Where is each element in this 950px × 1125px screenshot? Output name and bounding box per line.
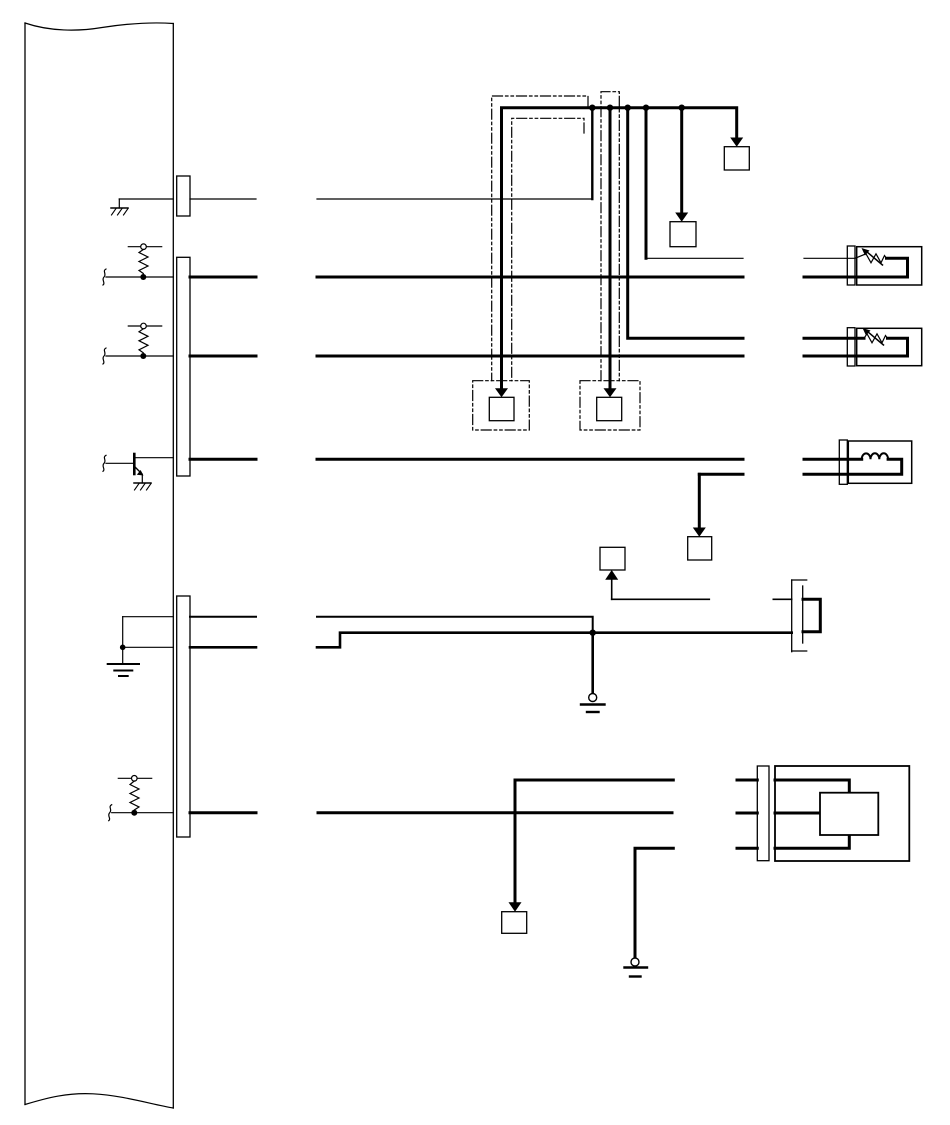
connector-box-c	[688, 537, 712, 560]
signal-ground-hatch	[118, 209, 123, 216]
arrow-down	[730, 138, 743, 147]
junction-dot	[589, 105, 595, 111]
signal-ground-hatch	[147, 484, 152, 491]
junction-dot	[625, 105, 631, 111]
junction-dot	[643, 105, 649, 111]
arrow-down	[495, 388, 508, 397]
coil-return-path	[804, 459, 902, 474]
shield-outline-1-inner	[512, 118, 584, 380]
shield-terminal-box-1	[489, 397, 514, 420]
ecu-connector-bracket-2	[177, 257, 190, 476]
arrow-up	[605, 570, 618, 580]
subwire-f	[515, 780, 673, 903]
wire5-seg-b	[317, 617, 593, 633]
junction-dot	[120, 645, 126, 651]
wire6-seg-b	[317, 633, 792, 648]
connector-box-e	[600, 547, 625, 570]
pullup2-supply-node	[141, 244, 147, 250]
signal-ground-hatch	[135, 484, 140, 491]
junction-dot	[679, 105, 685, 111]
pullup3-supply-node	[141, 323, 147, 329]
actuator-path-bottom	[775, 834, 849, 848]
coil-sensor-bracket	[839, 440, 847, 484]
sensor1-return-path	[804, 258, 908, 277]
sensor1-bracket	[847, 246, 855, 285]
shield-terminal-box-2	[597, 397, 622, 420]
connector-g-shell	[803, 599, 820, 631]
junction-dot	[140, 353, 146, 359]
actuator-bracket	[757, 766, 769, 861]
connector-box-b	[724, 147, 749, 170]
actuator-inner-box	[820, 793, 878, 835]
sensor2-bracket	[847, 328, 855, 366]
ground-wire-bottom	[635, 848, 673, 958]
junction-dot	[140, 274, 146, 280]
shield-outline-1-outer	[492, 96, 588, 381]
signal-ground-hatch	[112, 209, 117, 216]
chassis-ground-ring	[589, 694, 597, 702]
arrow-down	[509, 902, 522, 912]
coil-winding	[862, 453, 888, 459]
connector-box-a	[670, 222, 696, 247]
chassis-ground-ring	[631, 958, 639, 966]
connector-box-f	[502, 912, 527, 934]
signal-ground-hatch	[124, 209, 129, 216]
ecu-top-torn-edge	[25, 23, 173, 30]
pullup7-resistor	[130, 781, 139, 813]
pullup3-resistor	[139, 329, 148, 356]
ecu-connector-bracket-3	[177, 596, 190, 837]
ecu-connector-bracket-1	[177, 176, 190, 216]
ecu-bottom-torn-edge	[25, 1094, 173, 1108]
pullup2-resistor	[139, 250, 148, 278]
arrow-down	[604, 388, 617, 397]
junction-dot	[131, 810, 137, 816]
sensor2-return-path	[804, 338, 908, 356]
signal-ground-hatch	[141, 484, 146, 491]
sensor1-wiper-arrowhead	[862, 248, 870, 256]
sensor2-wiper-arrowhead	[863, 328, 871, 336]
junction-dot	[607, 105, 613, 111]
wiring-diagram-page	[0, 0, 950, 1125]
wiring-diagram-canvas	[0, 0, 950, 1125]
arrow-down	[675, 213, 688, 222]
arrow-down	[693, 528, 706, 537]
